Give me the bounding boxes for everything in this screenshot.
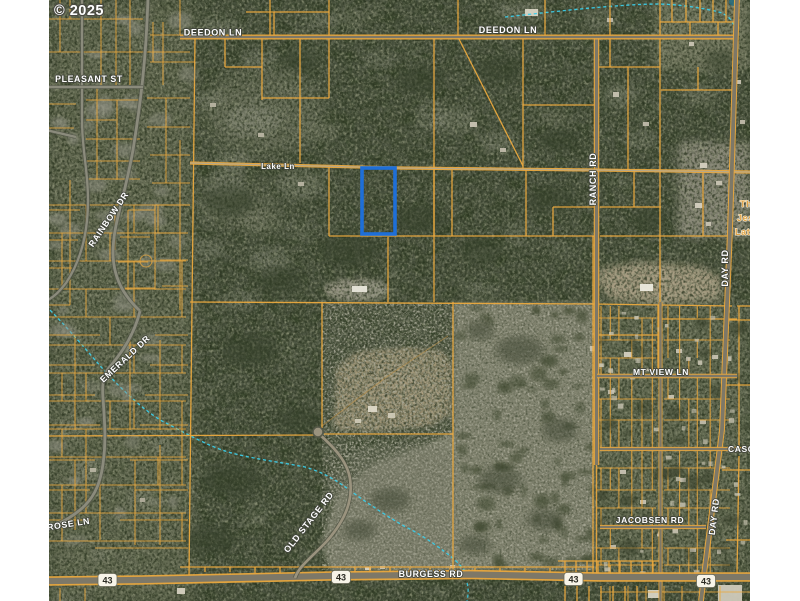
svg-text:43: 43 [102, 576, 112, 586]
svg-text:BURGESS RD: BURGESS RD [399, 569, 464, 579]
svg-text:© 2025: © 2025 [54, 3, 104, 19]
svg-text:43: 43 [568, 575, 578, 585]
svg-text:MT VIEW LN: MT VIEW LN [633, 367, 689, 377]
svg-text:JACOBSEN RD: JACOBSEN RD [616, 515, 684, 525]
svg-text:RANCH RD: RANCH RD [588, 153, 598, 206]
svg-text:Lake Ln: Lake Ln [261, 162, 295, 171]
svg-text:DEEDON LN: DEEDON LN [479, 25, 537, 35]
svg-text:43: 43 [336, 573, 346, 583]
svg-text:43: 43 [701, 577, 711, 587]
svg-text:DEEDON LN: DEEDON LN [184, 28, 242, 38]
svg-text:DAY RD: DAY RD [720, 249, 730, 286]
svg-text:PLEASANT ST: PLEASANT ST [55, 74, 123, 84]
